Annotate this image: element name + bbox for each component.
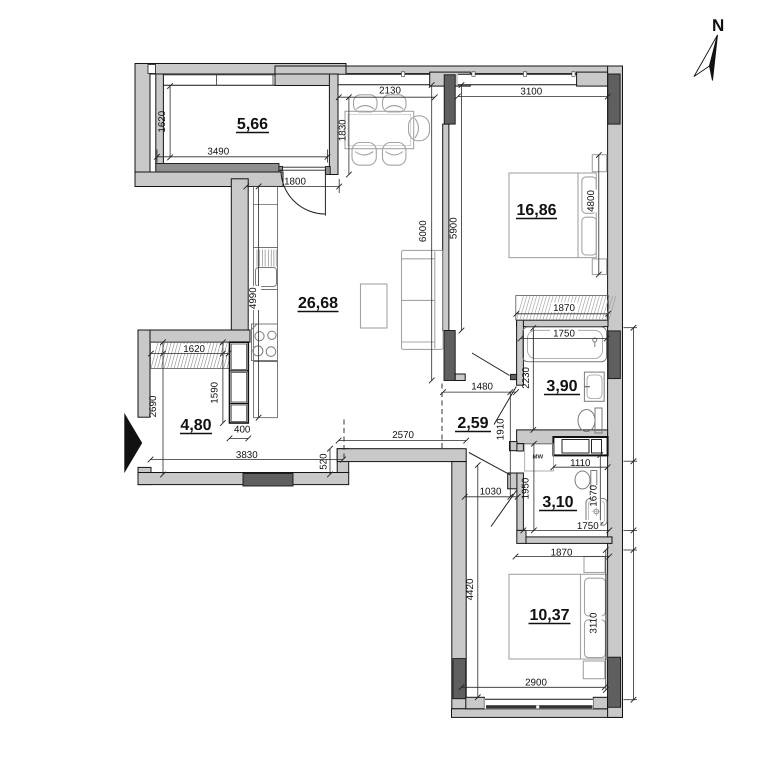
svg-text:4,80: 4,80 <box>180 417 211 434</box>
svg-text:3,90: 3,90 <box>546 378 577 395</box>
svg-text:1830: 1830 <box>337 119 348 141</box>
svg-text:1870: 1870 <box>553 303 575 314</box>
svg-text:2570: 2570 <box>392 430 414 441</box>
svg-text:1750: 1750 <box>553 328 575 339</box>
svg-text:2900: 2900 <box>525 678 547 689</box>
svg-text:2130: 2130 <box>379 86 401 97</box>
svg-text:1750: 1750 <box>577 521 599 532</box>
svg-text:1910: 1910 <box>496 418 507 440</box>
svg-text:1110: 1110 <box>570 458 591 469</box>
svg-text:1800: 1800 <box>284 176 306 187</box>
svg-text:3830: 3830 <box>236 450 258 461</box>
svg-text:1870: 1870 <box>551 547 573 558</box>
svg-text:4800: 4800 <box>586 190 597 212</box>
svg-text:4420: 4420 <box>465 578 476 600</box>
svg-text:6000: 6000 <box>418 220 429 242</box>
svg-text:1590: 1590 <box>209 381 220 403</box>
svg-text:2230: 2230 <box>521 366 532 388</box>
svg-text:16,86: 16,86 <box>516 202 556 219</box>
svg-text:1480: 1480 <box>471 382 493 393</box>
svg-text:3100: 3100 <box>520 87 542 98</box>
svg-text:3110: 3110 <box>589 612 600 634</box>
svg-text:1950: 1950 <box>521 477 532 499</box>
svg-text:1670: 1670 <box>588 484 599 506</box>
svg-text:1620: 1620 <box>157 110 168 132</box>
svg-text:1620: 1620 <box>183 344 205 355</box>
svg-text:5,66: 5,66 <box>237 116 268 133</box>
svg-text:5900: 5900 <box>449 217 460 239</box>
svg-text:2,59: 2,59 <box>457 415 488 432</box>
svg-text:1030: 1030 <box>480 486 502 497</box>
svg-text:4990: 4990 <box>248 287 259 309</box>
svg-text:520: 520 <box>319 453 330 470</box>
svg-text:400: 400 <box>234 425 251 436</box>
svg-text:N: N <box>712 16 724 35</box>
svg-text:3,10: 3,10 <box>542 494 573 511</box>
svg-text:10,37: 10,37 <box>529 607 569 624</box>
svg-text:3490: 3490 <box>207 146 229 157</box>
svg-text:2690: 2690 <box>148 395 159 417</box>
svg-text:26,68: 26,68 <box>298 295 338 312</box>
